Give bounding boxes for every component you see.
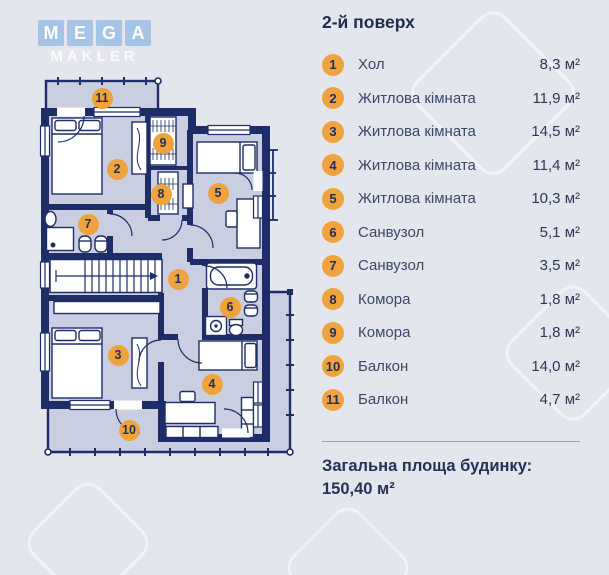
list-item: 9 Комора 1,8 м²	[322, 316, 580, 350]
list-item: 2 Житлова кімната 11,9 м²	[322, 82, 580, 116]
logo-letter: E	[67, 20, 93, 46]
list-item: 5 Житлова кімната 10,3 м²	[322, 182, 580, 216]
room-number-badge: 10	[322, 355, 344, 377]
plan-room-marker: 4	[202, 374, 223, 395]
list-item: 8 Комора 1,8 м²	[322, 283, 580, 317]
room-name: Комора	[358, 324, 410, 341]
room-number-badge: 11	[322, 389, 344, 411]
plan-room-marker: 8	[151, 184, 172, 205]
room-number-badge: 1	[322, 54, 344, 76]
room-name: Хол	[358, 56, 385, 73]
list-item: 4 Житлова кімната 11,4 м²	[322, 149, 580, 183]
plan-room-marker: 2	[107, 159, 128, 180]
list-item: 1 Хол 8,3 м²	[322, 48, 580, 82]
list-item: 10 Балкон 14,0 м²	[322, 350, 580, 384]
room-area: 14,0 м²	[531, 358, 580, 375]
listing-floorplan-image: M E G A MAKLER	[0, 0, 609, 575]
plan-room-marker: 9	[153, 133, 174, 154]
room-area: 11,4 м²	[532, 157, 580, 174]
room-area: 3,5 м²	[540, 257, 580, 274]
room-area: 1,8 м²	[540, 324, 580, 341]
total-area-block: Загальна площа будинку: 150,40 м²	[322, 455, 580, 503]
room-name: Санвузол	[358, 224, 424, 241]
room-name: Балкон	[358, 391, 408, 408]
plan-room-marker: 1	[168, 269, 189, 290]
room-number-badge: 5	[322, 188, 344, 210]
logo-letter: G	[96, 20, 122, 46]
room-name: Житлова кімната	[358, 157, 476, 174]
logo-letter: M	[38, 20, 64, 46]
list-item: 3 Житлова кімната 14,5 м²	[322, 115, 580, 149]
room-list: 1 Хол 8,3 м² 2 Житлова кімната 11,9 м² 3…	[322, 48, 580, 417]
stairs	[50, 260, 162, 293]
room-number-badge: 8	[322, 288, 344, 310]
room-name: Санвузол	[358, 257, 424, 274]
plan-room-marker: 10	[119, 420, 140, 441]
room-area: 10,3 м²	[531, 190, 580, 207]
room-name: Балкон	[358, 358, 408, 375]
room-legend: 2-й поверх 1 Хол 8,3 м² 2 Житлова кімнат…	[322, 12, 580, 502]
room-number-badge: 6	[322, 221, 344, 243]
room-area: 1,8 м²	[540, 291, 580, 308]
list-item: 7 Санвузол 3,5 м²	[322, 249, 580, 283]
plan-room-marker: 7	[78, 214, 99, 235]
room-area: 8,3 м²	[540, 56, 580, 73]
watermark-pattern	[280, 500, 416, 575]
page-title: 2-й поверх	[322, 12, 580, 33]
total-area-value: 150,40 м²	[322, 478, 580, 502]
plan-room-marker: 5	[208, 183, 229, 204]
room-number-badge: 9	[322, 322, 344, 344]
room-number-badge: 2	[322, 87, 344, 109]
logo-letter-boxes: M E G A	[38, 20, 151, 46]
legend-divider	[322, 441, 580, 442]
room-number-badge: 7	[322, 255, 344, 277]
room-area: 4,7 м²	[540, 391, 580, 408]
floor-plan: 1 2 3 4 5 6 7 8 9 10 11	[0, 60, 310, 475]
room-area: 11,9 м²	[532, 90, 580, 107]
room-number-badge: 3	[322, 121, 344, 143]
plan-room-marker: 11	[92, 88, 113, 109]
floor-plan-drawing	[0, 60, 310, 475]
room-number-badge: 4	[322, 154, 344, 176]
plan-room-marker: 6	[220, 297, 241, 318]
mega-makler-logo: M E G A MAKLER	[38, 20, 151, 65]
room-name: Житлова кімната	[358, 190, 476, 207]
plan-room-marker: 3	[108, 345, 129, 366]
room-name: Житлова кімната	[358, 123, 476, 140]
list-item: 6 Санвузол 5,1 м²	[322, 216, 580, 250]
room-name: Житлова кімната	[358, 90, 476, 107]
list-item: 11 Балкон 4,7 м²	[322, 383, 580, 417]
room-name: Комора	[358, 291, 410, 308]
watermark-pattern	[20, 475, 156, 575]
room-area: 5,1 м²	[540, 224, 580, 241]
total-area-label: Загальна площа будинку:	[322, 455, 580, 479]
room-area: 14,5 м²	[531, 123, 580, 140]
logo-letter: A	[125, 20, 151, 46]
